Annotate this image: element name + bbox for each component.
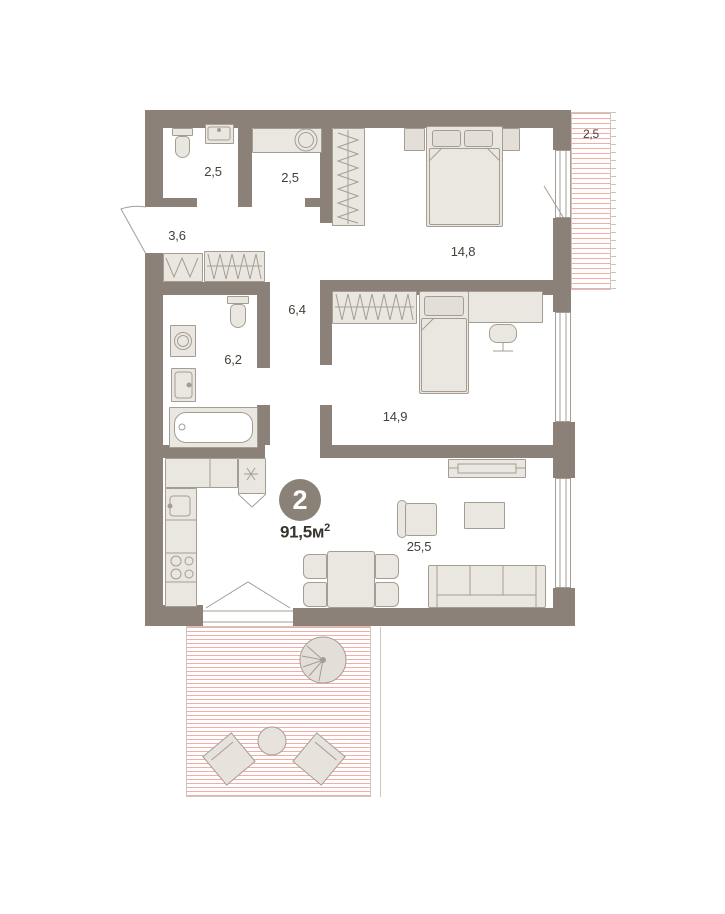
pillow [464,130,493,147]
toilet-bowl [175,136,190,158]
wall [145,605,203,626]
floor-plan: 2,5 2,5 3,6 14,8 2,5 6,4 6,2 14,9 25,5 2… [0,0,725,914]
kitchen-counter [165,488,197,607]
coffee-table [464,502,505,529]
room-label-laundry: 2,5 [269,170,311,185]
rooms-count-badge: 2 [279,479,321,521]
room-label-bathroom: 6,2 [212,352,254,367]
fridge-door-swing [238,494,266,507]
wall [293,608,553,626]
dining-table [327,551,375,608]
blanket [421,318,467,392]
bathroom-sink [171,368,196,402]
wall [145,198,197,207]
desk [468,291,543,323]
living-window [555,478,571,588]
wall [553,218,571,285]
room-label-hallway: 3,6 [156,228,198,243]
wall [553,588,575,626]
wall [320,405,332,445]
wardrobe [332,128,365,226]
room-label-wc: 2,5 [192,164,234,179]
desk-chair-base [493,343,513,351]
pillow [432,130,461,147]
bedroom2-window [555,312,571,422]
balcony-glass-door [555,150,571,218]
wall [553,295,571,312]
toilet-bowl [230,304,246,328]
nightstand [404,128,425,151]
wall [163,282,270,295]
wall [320,445,553,458]
dining-chair [303,582,327,607]
wc-sink [205,124,234,144]
room-label-balcony: 2,5 [570,127,612,141]
blanket [429,148,500,225]
total-area-unit: м [312,523,324,542]
terrace-door [203,582,293,622]
shoe-cabinet [163,253,203,282]
bathtub-inner [174,412,253,443]
wall [257,295,270,368]
toilet-tank [227,296,249,304]
armchair-seat [405,503,437,536]
desk-chair [489,324,517,343]
wall [145,110,163,207]
dining-chair [375,554,399,579]
dining-chair [303,554,327,579]
wall [553,110,571,150]
washing-machine [170,325,196,357]
wall [145,253,163,610]
sofa [428,565,546,608]
wall [257,405,270,445]
toilet-tank [172,128,193,136]
total-area-unit-sup: 2 [324,522,330,534]
wall [320,295,332,365]
dining-chair [375,582,399,607]
hall-wardrobe [204,251,265,282]
room-label-living: 25,5 [396,539,442,554]
pillow [424,296,464,316]
laundry-counter [252,128,322,153]
room-label-bedroom-2: 14,9 [372,409,418,424]
wardrobe [332,291,417,324]
wall [238,110,252,207]
room-label-bedroom-1: 14,8 [440,244,486,259]
room-label-corridor: 6,4 [276,302,318,317]
terrace-rail-line [380,627,381,797]
total-area-value: 91,5 [280,523,312,542]
kitchen-counter [165,458,238,488]
tv-stand [448,459,526,478]
wall [553,422,575,478]
fridge [238,458,266,494]
wall [320,110,332,223]
entrance-door-swing [121,206,146,254]
total-area-label: 91,5м2 [265,522,345,543]
